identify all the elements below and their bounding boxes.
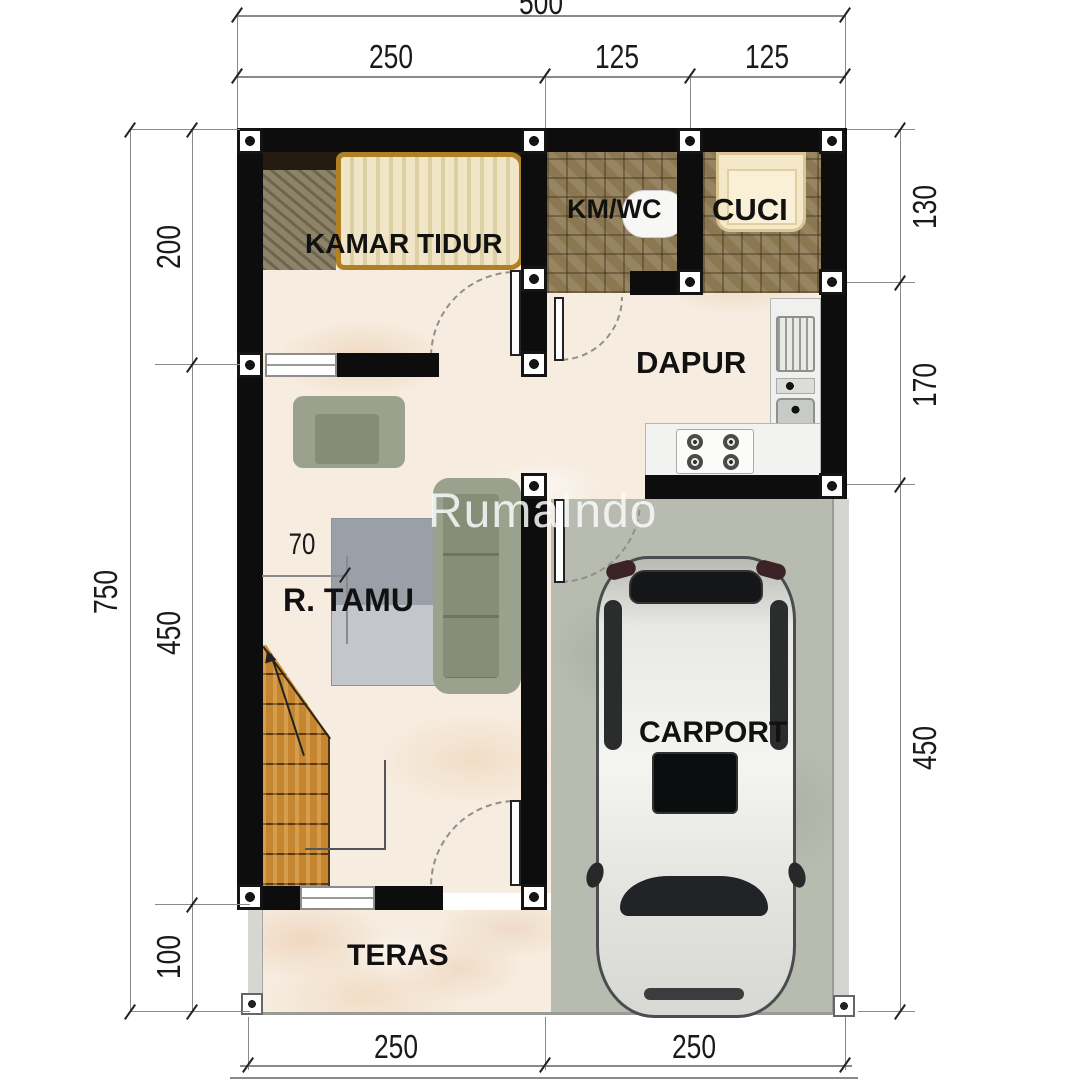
front-window bbox=[300, 886, 375, 910]
extension-line bbox=[858, 1011, 915, 1012]
car-side-glass bbox=[604, 600, 622, 750]
extension-line bbox=[130, 129, 240, 130]
extension-line bbox=[155, 904, 250, 905]
wall-right bbox=[821, 128, 847, 499]
car-windshield bbox=[620, 876, 768, 916]
dim-top-1: 250 bbox=[355, 38, 427, 76]
extension-line bbox=[690, 76, 691, 128]
column-marker bbox=[237, 352, 263, 378]
dim-bottom-1: 250 bbox=[360, 1028, 432, 1066]
dim-left-2: 450 bbox=[150, 597, 186, 669]
column-marker bbox=[521, 128, 547, 154]
wall-bedroom-bathroom bbox=[521, 148, 547, 377]
dim-line bbox=[900, 130, 901, 1012]
burner bbox=[687, 434, 703, 450]
extension-line bbox=[155, 364, 240, 365]
column-marker bbox=[521, 266, 547, 292]
dim-left-3: 100 bbox=[150, 921, 186, 993]
carport-side-border bbox=[832, 499, 849, 1015]
dim-top-2: 125 bbox=[581, 38, 653, 76]
dim-table-offset: 70 bbox=[266, 528, 338, 562]
dim-line bbox=[130, 130, 131, 1012]
burner bbox=[687, 454, 703, 470]
column-marker bbox=[819, 128, 845, 154]
burner bbox=[723, 434, 739, 450]
column-marker bbox=[521, 351, 547, 377]
column-marker bbox=[237, 128, 263, 154]
dim-left-1: 200 bbox=[150, 211, 186, 283]
stairs-guide-line-vertical bbox=[384, 760, 386, 850]
car bbox=[596, 556, 796, 1018]
dish-rack bbox=[776, 316, 815, 372]
wall-left bbox=[237, 128, 263, 910]
burner bbox=[723, 454, 739, 470]
column-marker bbox=[833, 995, 855, 1017]
label-bathroom: KM/WC bbox=[567, 194, 661, 225]
label-kitchen: DAPUR bbox=[636, 345, 746, 381]
kitchen-faucet bbox=[776, 378, 815, 394]
extension-line bbox=[545, 76, 546, 128]
dim-top-overall: 500 bbox=[505, 0, 577, 22]
bedroom-door-leaf bbox=[510, 270, 521, 356]
watermark: RumaIndo bbox=[428, 484, 657, 539]
wall-bathroom-bottom bbox=[630, 271, 677, 295]
label-living-room: R. TAMU bbox=[283, 582, 414, 619]
column-marker bbox=[237, 884, 263, 910]
armchair-seat bbox=[315, 414, 379, 464]
dim-right-3: 450 bbox=[906, 712, 942, 784]
wall-front-a bbox=[263, 886, 300, 910]
column-marker bbox=[819, 269, 845, 295]
column-marker bbox=[819, 473, 845, 499]
wall-bedroom-bottom bbox=[337, 353, 439, 377]
dim-top-3: 125 bbox=[731, 38, 803, 76]
extension-line bbox=[847, 282, 915, 283]
stairs-guide-line bbox=[305, 848, 385, 850]
stove bbox=[676, 429, 754, 474]
wall-kitchen-carport bbox=[645, 475, 821, 499]
car-sunroof bbox=[652, 752, 738, 814]
dim-right-2: 170 bbox=[906, 349, 942, 421]
bedroom-window bbox=[265, 353, 337, 377]
bathroom-door-leaf bbox=[554, 297, 564, 361]
label-bedroom: KAMAR TIDUR bbox=[305, 228, 503, 260]
front-door-leaf bbox=[510, 800, 521, 886]
dim-bottom-2: 250 bbox=[658, 1028, 730, 1066]
label-laundry: CUCI bbox=[712, 192, 788, 228]
wall-living-carport bbox=[521, 499, 547, 910]
dim-line bbox=[230, 1077, 858, 1079]
extension-line bbox=[847, 484, 915, 485]
floor-plan: KAMAR TIDUR KM/WC CUCI DAPUR R. TAMU CAR… bbox=[0, 0, 1080, 1080]
dim-line bbox=[262, 575, 347, 577]
car-rear-window bbox=[629, 570, 763, 604]
extension-line bbox=[847, 129, 915, 130]
dim-right-1: 130 bbox=[906, 171, 942, 243]
label-terrace: TERAS bbox=[347, 939, 449, 973]
armchair bbox=[293, 396, 405, 468]
column-marker bbox=[677, 128, 703, 154]
dim-left-overall: 750 bbox=[87, 556, 123, 628]
column-marker bbox=[677, 269, 703, 295]
dim-line bbox=[192, 130, 193, 1012]
wall-front-b bbox=[375, 886, 443, 910]
column-marker bbox=[521, 884, 547, 910]
label-carport: CARPORT bbox=[639, 716, 787, 750]
car-grille bbox=[644, 988, 744, 1000]
